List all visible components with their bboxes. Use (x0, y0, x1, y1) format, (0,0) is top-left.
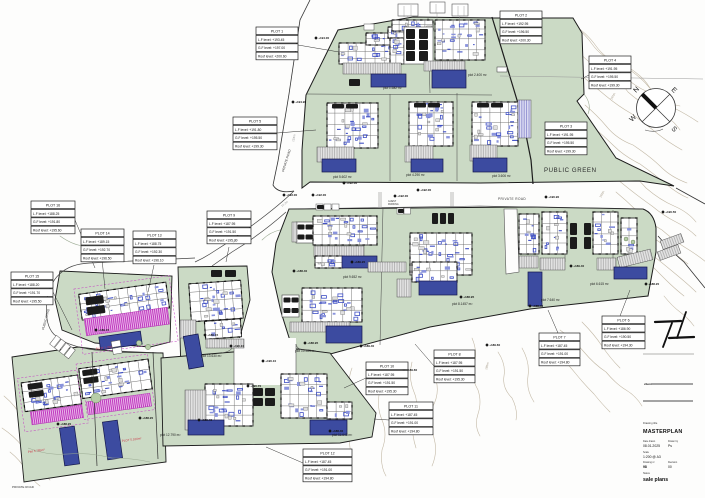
svg-text:Roof level: +195.30: Roof level: +195.30 (436, 378, 465, 382)
svg-text:Roof level: +195.30: Roof level: +195.30 (368, 390, 397, 394)
svg-text:plot 12.790 m²: plot 12.790 m² (160, 433, 180, 437)
svg-text:G.F level: +190.50: G.F level: +190.50 (604, 335, 631, 339)
svg-text:Revision: Revision (668, 461, 678, 464)
svg-text:L.F level: +187.45: L.F level: +187.45 (541, 344, 567, 348)
svg-text:Scale: Scale (643, 451, 650, 454)
svg-text:client: client (644, 382, 652, 386)
svg-text:PLOT 11: PLOT 11 (404, 404, 418, 408)
svg-text:+190.50: +190.50 (665, 210, 676, 214)
svg-text:PLOT 1: PLOT 1 (271, 29, 283, 33)
svg-text:G.F level: +191.50: G.F level: +191.50 (209, 230, 236, 234)
svg-text:plot 5.602 m²: plot 5.602 m² (333, 175, 352, 179)
svg-text:08.01.2025: 08.01.2025 (643, 444, 660, 448)
svg-text:Roof level: +199.30: Roof level: +199.30 (235, 145, 264, 149)
svg-text:L.F level: +193.45: L.F level: +193.45 (258, 38, 284, 42)
svg-text:G.F level: +191.70: G.F level: +191.70 (13, 291, 40, 295)
svg-text:G.F level: +192.70: G.F level: +192.70 (83, 248, 110, 252)
svg-text:+194.90: +194.90 (295, 100, 306, 104)
svg-text:PLOT 4: PLOT 4 (604, 58, 616, 62)
svg-text:+189.60: +189.60 (489, 343, 500, 347)
svg-text:+192.00: +192.00 (315, 193, 326, 197)
svg-text:plot 1.582 m²: plot 1.582 m² (383, 86, 402, 90)
svg-text:Roof level: +196.50: Roof level: +196.50 (83, 257, 112, 261)
svg-text:Ps: Ps (668, 444, 672, 448)
svg-text:L.F level: +187.95: L.F level: +187.95 (436, 361, 462, 365)
svg-text:G.F level: +195.50: G.F level: +195.50 (591, 75, 618, 79)
svg-text:+189.40: +189.40 (363, 344, 374, 348)
svg-text:sale plans: sale plans (643, 477, 668, 483)
svg-text:G.F level: +195.50: G.F level: +195.50 (547, 141, 574, 145)
svg-text:L.F level: +191.95: L.F level: +191.95 (547, 133, 573, 137)
svg-text:PARKING: PARKING (388, 203, 399, 206)
svg-text:1:200 @ A3: 1:200 @ A3 (643, 455, 661, 459)
svg-text:L.F level: +192.95: L.F level: +192.95 (502, 22, 528, 26)
svg-text:Roof level: +196.10: Roof level: +196.10 (135, 259, 164, 263)
svg-text:Roof level: +194.80: Roof level: +194.80 (305, 477, 334, 481)
svg-text:+188.40: +188.40 (532, 304, 543, 308)
svg-text:Roof level: +199.30: Roof level: +199.30 (591, 84, 620, 88)
svg-text:PRIVATE ROAD: PRIVATE ROAD (12, 485, 35, 489)
svg-text:+192.00: +192.00 (420, 188, 431, 192)
svg-text:L.F level: +187.95: L.F level: +187.95 (368, 373, 394, 377)
svg-text:+194.00: +194.00 (318, 36, 329, 40)
svg-text:98: 98 (643, 465, 647, 469)
svg-text:L.F level: +191.95: L.F level: +191.95 (591, 67, 617, 71)
svg-text:+188.40: +188.40 (332, 429, 343, 433)
svg-text:Date drawn: Date drawn (643, 440, 656, 443)
svg-text:L.F level: +187.45: L.F level: +187.45 (391, 413, 417, 417)
svg-text:00: 00 (668, 465, 672, 469)
svg-text:G.F level: +196.50: G.F level: +196.50 (502, 30, 529, 34)
svg-text:PRIVATE ROAD: PRIVATE ROAD (498, 197, 526, 201)
svg-text:G.F level: +191.00: G.F level: +191.00 (305, 468, 332, 472)
svg-text:+190.70: +190.70 (250, 384, 261, 388)
svg-text:PLOT 15: PLOT 15 (25, 274, 39, 278)
svg-text:L.F level: +189.15: L.F level: +189.15 (83, 240, 109, 244)
svg-text:L.F level: +187.95: L.F level: +187.95 (209, 222, 235, 226)
svg-text:PLOT 9: PLOT 9 (223, 213, 235, 217)
svg-text:PLOT 16: PLOT 16 (46, 203, 60, 207)
svg-text:+190.10: +190.10 (265, 359, 276, 363)
svg-text:PLOT 13: PLOT 13 (147, 233, 161, 237)
svg-text:Drawn by: Drawn by (668, 440, 679, 443)
svg-text:+193.00: +193.00 (286, 193, 297, 197)
svg-text:Roof level: +200.30: Roof level: +200.30 (502, 39, 531, 43)
svg-text:Drawing nr: Drawing nr (643, 461, 655, 464)
svg-text:Roof level: +194.30: Roof level: +194.30 (604, 344, 633, 348)
svg-text:PLOT 14: PLOT 14 (95, 231, 109, 235)
svg-text:PLOT 10: PLOT 10 (380, 364, 394, 368)
svg-text:plot 13.630 m²: plot 13.630 m² (201, 354, 221, 358)
svg-text:+189.40: +189.40 (201, 418, 212, 422)
svg-text:+188.40: +188.40 (296, 269, 307, 273)
svg-text:Drawing title: Drawing title (643, 421, 658, 425)
svg-text:Roof level: +194.80: Roof level: +194.80 (541, 361, 570, 365)
svg-text:G.F level: +191.80: G.F level: +191.80 (33, 220, 60, 224)
svg-text:plot 4.290 m²: plot 4.290 m² (406, 173, 425, 177)
svg-text:Roof level: +200.60: Roof level: +200.60 (258, 55, 287, 59)
svg-text:plot 6.615 m²: plot 6.615 m² (590, 282, 609, 286)
svg-text:+190.10: +190.10 (233, 344, 244, 348)
svg-text:+192.00: +192.00 (397, 194, 408, 198)
svg-text:+189.15: +189.15 (98, 328, 109, 332)
svg-text:+188.95: +188.95 (307, 341, 318, 345)
svg-text:plot 10.983 m²: plot 10.983 m² (295, 349, 315, 353)
svg-text:G.F level: +192.30: G.F level: +192.30 (135, 250, 162, 254)
svg-text:+188.20: +188.20 (60, 422, 71, 426)
svg-text:+190.90: +190.90 (548, 195, 559, 199)
svg-text:PLOT 6: PLOT 6 (617, 318, 629, 322)
svg-text:+189.15: +189.15 (207, 333, 218, 337)
svg-text:L.F level: +191.80: L.F level: +191.80 (235, 128, 261, 132)
svg-text:plot 7.640 m²: plot 7.640 m² (541, 298, 560, 302)
svg-text:Roof level: +194.80: Roof level: +194.80 (391, 430, 420, 434)
svg-text:L.F level: +187.45: L.F level: +187.45 (305, 460, 331, 464)
svg-text:PLOT 12: PLOT 12 (320, 451, 334, 455)
svg-text:PLOT 2: PLOT 2 (515, 13, 527, 17)
svg-text:G.F level: +191.00: G.F level: +191.00 (391, 421, 418, 425)
svg-text:+188.20: +188.20 (142, 416, 153, 420)
svg-text:plot 3.606 m²: plot 3.606 m² (492, 174, 511, 178)
svg-text:PLOT 8: PLOT 8 (448, 352, 460, 356)
svg-text:plot 8.1457 m²: plot 8.1457 m² (452, 302, 472, 306)
svg-text:+188.20: +188.20 (648, 282, 659, 286)
svg-text:G.F level: +197.00: G.F level: +197.00 (258, 46, 285, 50)
svg-text:+189.20: +189.20 (354, 260, 365, 264)
svg-text:Roof level: +195.60: Roof level: +195.60 (33, 229, 62, 233)
svg-text:L.F level: +188.20: L.F level: +188.20 (13, 283, 39, 287)
svg-text:+189.40: +189.40 (573, 264, 584, 268)
svg-text:+188.95: +188.95 (463, 295, 474, 299)
svg-text:MASTERPLAN: MASTERPLAN (643, 429, 682, 435)
svg-text:G.F level: +191.50: G.F level: +191.50 (368, 381, 395, 385)
svg-text:L.F level: +188.75: L.F level: +188.75 (135, 242, 161, 246)
svg-text:PUBLIC GREEN: PUBLIC GREEN (544, 167, 597, 174)
svg-text:+192.00: +192.00 (346, 181, 357, 185)
svg-text:Status: Status (643, 472, 651, 475)
svg-text:PLOT 3: PLOT 3 (560, 124, 572, 128)
svg-text:plot 2.400 m²: plot 2.400 m² (468, 73, 487, 77)
svg-text:G.F level: +191.50: G.F level: +191.50 (436, 369, 463, 373)
svg-text:Roof level: +195.50: Roof level: +195.50 (13, 300, 42, 304)
svg-text:L.F level: +186.90: L.F level: +186.90 (604, 327, 630, 331)
svg-text:Roof level: +199.30: Roof level: +199.30 (547, 150, 576, 154)
svg-text:L.F level: +188.25: L.F level: +188.25 (33, 212, 59, 216)
svg-text:PLOT 5: PLOT 5 (249, 119, 261, 123)
svg-text:PLOT 7: PLOT 7 (553, 335, 565, 339)
svg-text:plot 9.652 m²: plot 9.652 m² (343, 275, 362, 279)
svg-text:G.F level: +195.50: G.F level: +195.50 (235, 136, 262, 140)
svg-text:plot 11.643 m²: plot 11.643 m² (332, 433, 352, 437)
svg-text:G.F level: +191.00: G.F level: +191.00 (541, 352, 568, 356)
